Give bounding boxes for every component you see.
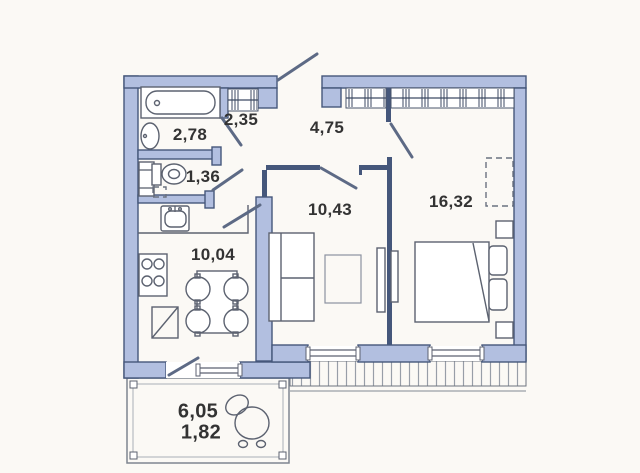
stove-icon	[139, 254, 167, 296]
corner-cabinet-icon	[152, 307, 178, 338]
area-label-balcony-reduced: 1,82	[181, 422, 221, 445]
area-label-closet: 2,35	[224, 110, 258, 130]
floor-plan: 2,78 2,35 4,75 1,36 10,43 16,32 10,04 6,…	[0, 0, 640, 473]
window-icon	[428, 346, 484, 361]
pillow-icon	[489, 279, 507, 310]
kitchen-sink-icon	[161, 206, 189, 231]
bedroom-hanger-rail	[391, 88, 514, 108]
area-label-balcony-full: 6,05	[178, 401, 218, 424]
armchair-icon	[222, 391, 269, 447]
area-label-living-room: 10,43	[308, 200, 352, 220]
area-label-bathroom: 2,78	[173, 125, 207, 145]
bed-icon	[415, 242, 507, 322]
kitchen-counter	[138, 205, 248, 233]
window-icon	[306, 346, 360, 361]
area-label-wc: 1,36	[186, 167, 220, 187]
area-label-kitchen: 10,04	[191, 245, 235, 265]
pillow-icon	[489, 246, 507, 275]
nightstand-icon	[496, 322, 513, 338]
terrace-hatch	[290, 361, 526, 391]
hallway-hanger-rail	[346, 88, 386, 108]
sofa-icon	[269, 233, 314, 321]
area-label-bedroom: 16,32	[429, 192, 473, 212]
toilet-icon	[152, 164, 186, 197]
coffee-table-icon	[325, 255, 361, 303]
nightstand-icon	[496, 221, 513, 238]
closet-hanger-rail	[228, 89, 258, 111]
bathtub-icon	[141, 87, 220, 118]
area-label-hallway: 4,75	[310, 118, 344, 138]
wardrobe-dashed-icon	[486, 158, 513, 206]
floor-plan-drawing	[0, 0, 640, 473]
washbasin-icon	[141, 123, 159, 149]
